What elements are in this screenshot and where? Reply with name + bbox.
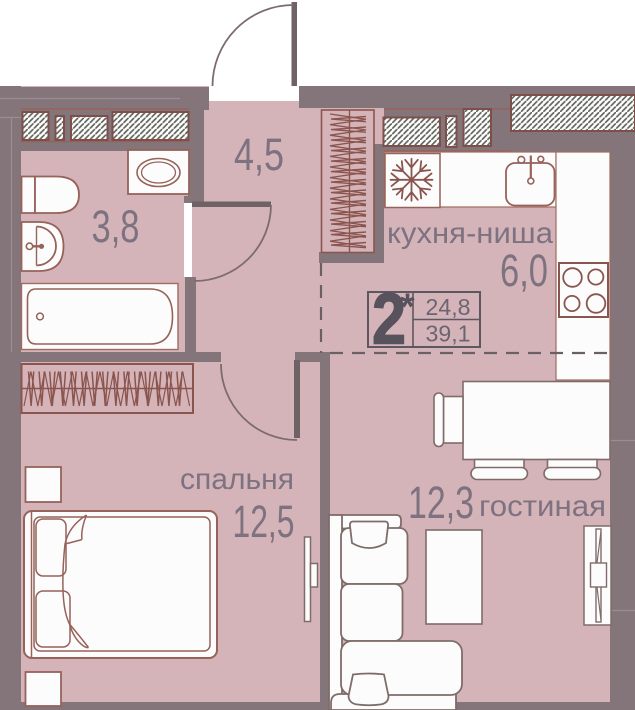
svg-text:24,8: 24,8 [426,294,471,320]
svg-text:39,1: 39,1 [426,321,471,347]
svg-text:12,5: 12,5 [233,496,295,547]
svg-text:гостиная: гостиная [479,490,606,523]
svg-text:*: * [400,286,415,327]
svg-text:3,8: 3,8 [92,201,140,252]
svg-text:6,0: 6,0 [500,245,548,296]
svg-text:спальня: спальня [180,463,294,496]
svg-text:12,3: 12,3 [408,477,474,528]
svg-text:4,5: 4,5 [234,129,284,180]
